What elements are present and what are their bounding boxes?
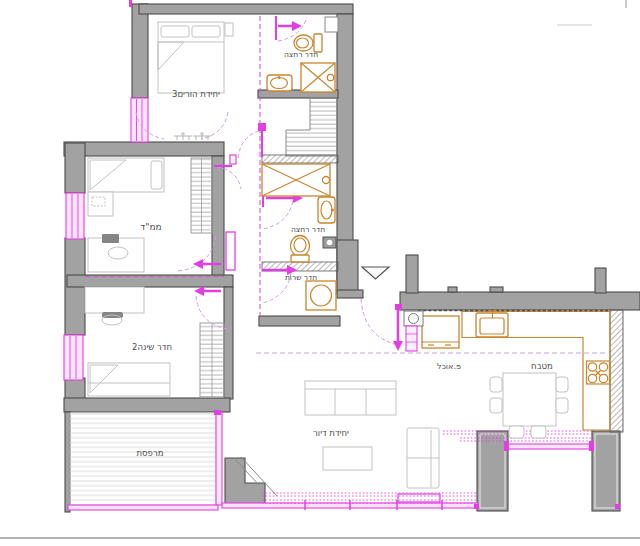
sink-icon <box>267 75 292 91</box>
kitchen-sink-icon <box>476 311 508 337</box>
door-arrow-entry <box>393 304 403 351</box>
wall-mamad-north <box>64 142 224 156</box>
washing-machine-icon <box>306 281 336 310</box>
foyer-tall-cabinet <box>406 326 417 351</box>
bed-mamad <box>88 158 164 192</box>
sofa <box>305 381 396 415</box>
bed-parents <box>158 22 224 93</box>
door-post-hall <box>258 123 266 157</box>
label-dining: פ.אוכל <box>437 362 461 371</box>
foyer-cabinet <box>404 311 423 326</box>
wall-balcony-north <box>64 398 230 412</box>
wall-niche <box>325 17 338 32</box>
wardrobe-hatch-bedroom2 <box>200 323 224 397</box>
wall-entry-left <box>337 240 358 293</box>
door-frame-hall <box>226 232 235 270</box>
kitchen-east-hatch-wall <box>610 310 623 432</box>
window-corner-mark-2 <box>474 504 479 509</box>
floor-plan-canvas: יחידת הורים3 חדר רחצה ממ"ד חדר רחצה חדר … <box>0 0 640 546</box>
desk-bedroom2 <box>85 287 144 325</box>
dining-table <box>490 373 568 438</box>
wall-top <box>139 4 353 14</box>
wall-notch-2 <box>490 287 503 292</box>
ceiling-fixture-symbols <box>174 133 211 140</box>
stove-icon <box>587 361 610 384</box>
coffee-table <box>323 447 372 470</box>
door-swing-arc-entry <box>361 299 399 345</box>
buffet-cabinet <box>422 316 459 348</box>
floor-plan-drawing: יחידת הורים3 חדר רחצה ממ"ד חדר רחצה חדר … <box>0 0 640 546</box>
label-service: חדר שרות <box>285 273 317 282</box>
wall-box <box>323 237 336 248</box>
label-balcony: מרפסת <box>137 448 164 458</box>
desk-mamad <box>88 234 144 272</box>
wall-hatch-band-1 <box>262 155 338 163</box>
label-kitchen: מטבח <box>531 361 553 371</box>
wall-balcony-west <box>65 412 70 512</box>
door-swing-arc-hall <box>238 130 262 158</box>
bed-bedroom2 <box>88 363 170 396</box>
toilet-icon-2 <box>291 236 310 263</box>
wall-stub-2 <box>595 268 606 293</box>
door-swing-arc-corridor-2 <box>201 112 228 139</box>
wall-bedroom2-east <box>224 287 233 399</box>
wall-service-south <box>259 316 340 326</box>
balcony-rail-south <box>68 505 218 510</box>
label-parents-unit: יחידת הורים3 <box>172 89 220 99</box>
pillar-right <box>592 431 620 511</box>
wall-mamad-west-upper <box>65 143 85 193</box>
wall-west-lower <box>65 378 85 400</box>
window-mamad-west <box>66 193 84 239</box>
door-frame-corridor <box>230 155 236 164</box>
wall-notch-1 <box>448 287 457 292</box>
label-mamad: ממ"ד <box>140 222 161 232</box>
pillar-left <box>477 431 508 511</box>
balcony-rail-east <box>216 412 222 505</box>
wall-parents-west <box>132 4 148 98</box>
label-bath-top: חדר רחצה <box>284 50 318 59</box>
label-bath-mid: חדר רחצה <box>291 225 325 234</box>
door-swing-arc-bath-mid <box>263 201 293 229</box>
window-dining-south <box>504 441 594 451</box>
balcony-deck <box>70 413 216 505</box>
window-corner-mark <box>214 410 221 415</box>
window-parents-west <box>131 98 148 142</box>
wall-entry-jamb-left <box>337 290 363 298</box>
nightstand <box>225 23 233 36</box>
shaft-hatch <box>286 98 337 156</box>
wall-stub-1 <box>406 255 418 293</box>
label-living: יחידת דיור <box>313 428 349 438</box>
window-corner-mark-3 <box>615 504 620 509</box>
shower-icon <box>301 63 335 92</box>
steps <box>225 457 277 505</box>
wardrobe-hatch-mamad <box>191 158 212 233</box>
shower-icon-2 <box>262 164 330 196</box>
wall-kitchen-north <box>400 292 640 310</box>
window-bedroom2-west <box>64 335 83 380</box>
armchair <box>407 428 439 488</box>
sink-icon-2 <box>318 197 335 223</box>
label-bedroom2: חדר שינה2 <box>132 342 172 352</box>
entrance-arrow-icon <box>362 267 389 279</box>
magenta-line-top <box>129 0 132 7</box>
shelf-mamad <box>88 192 113 216</box>
